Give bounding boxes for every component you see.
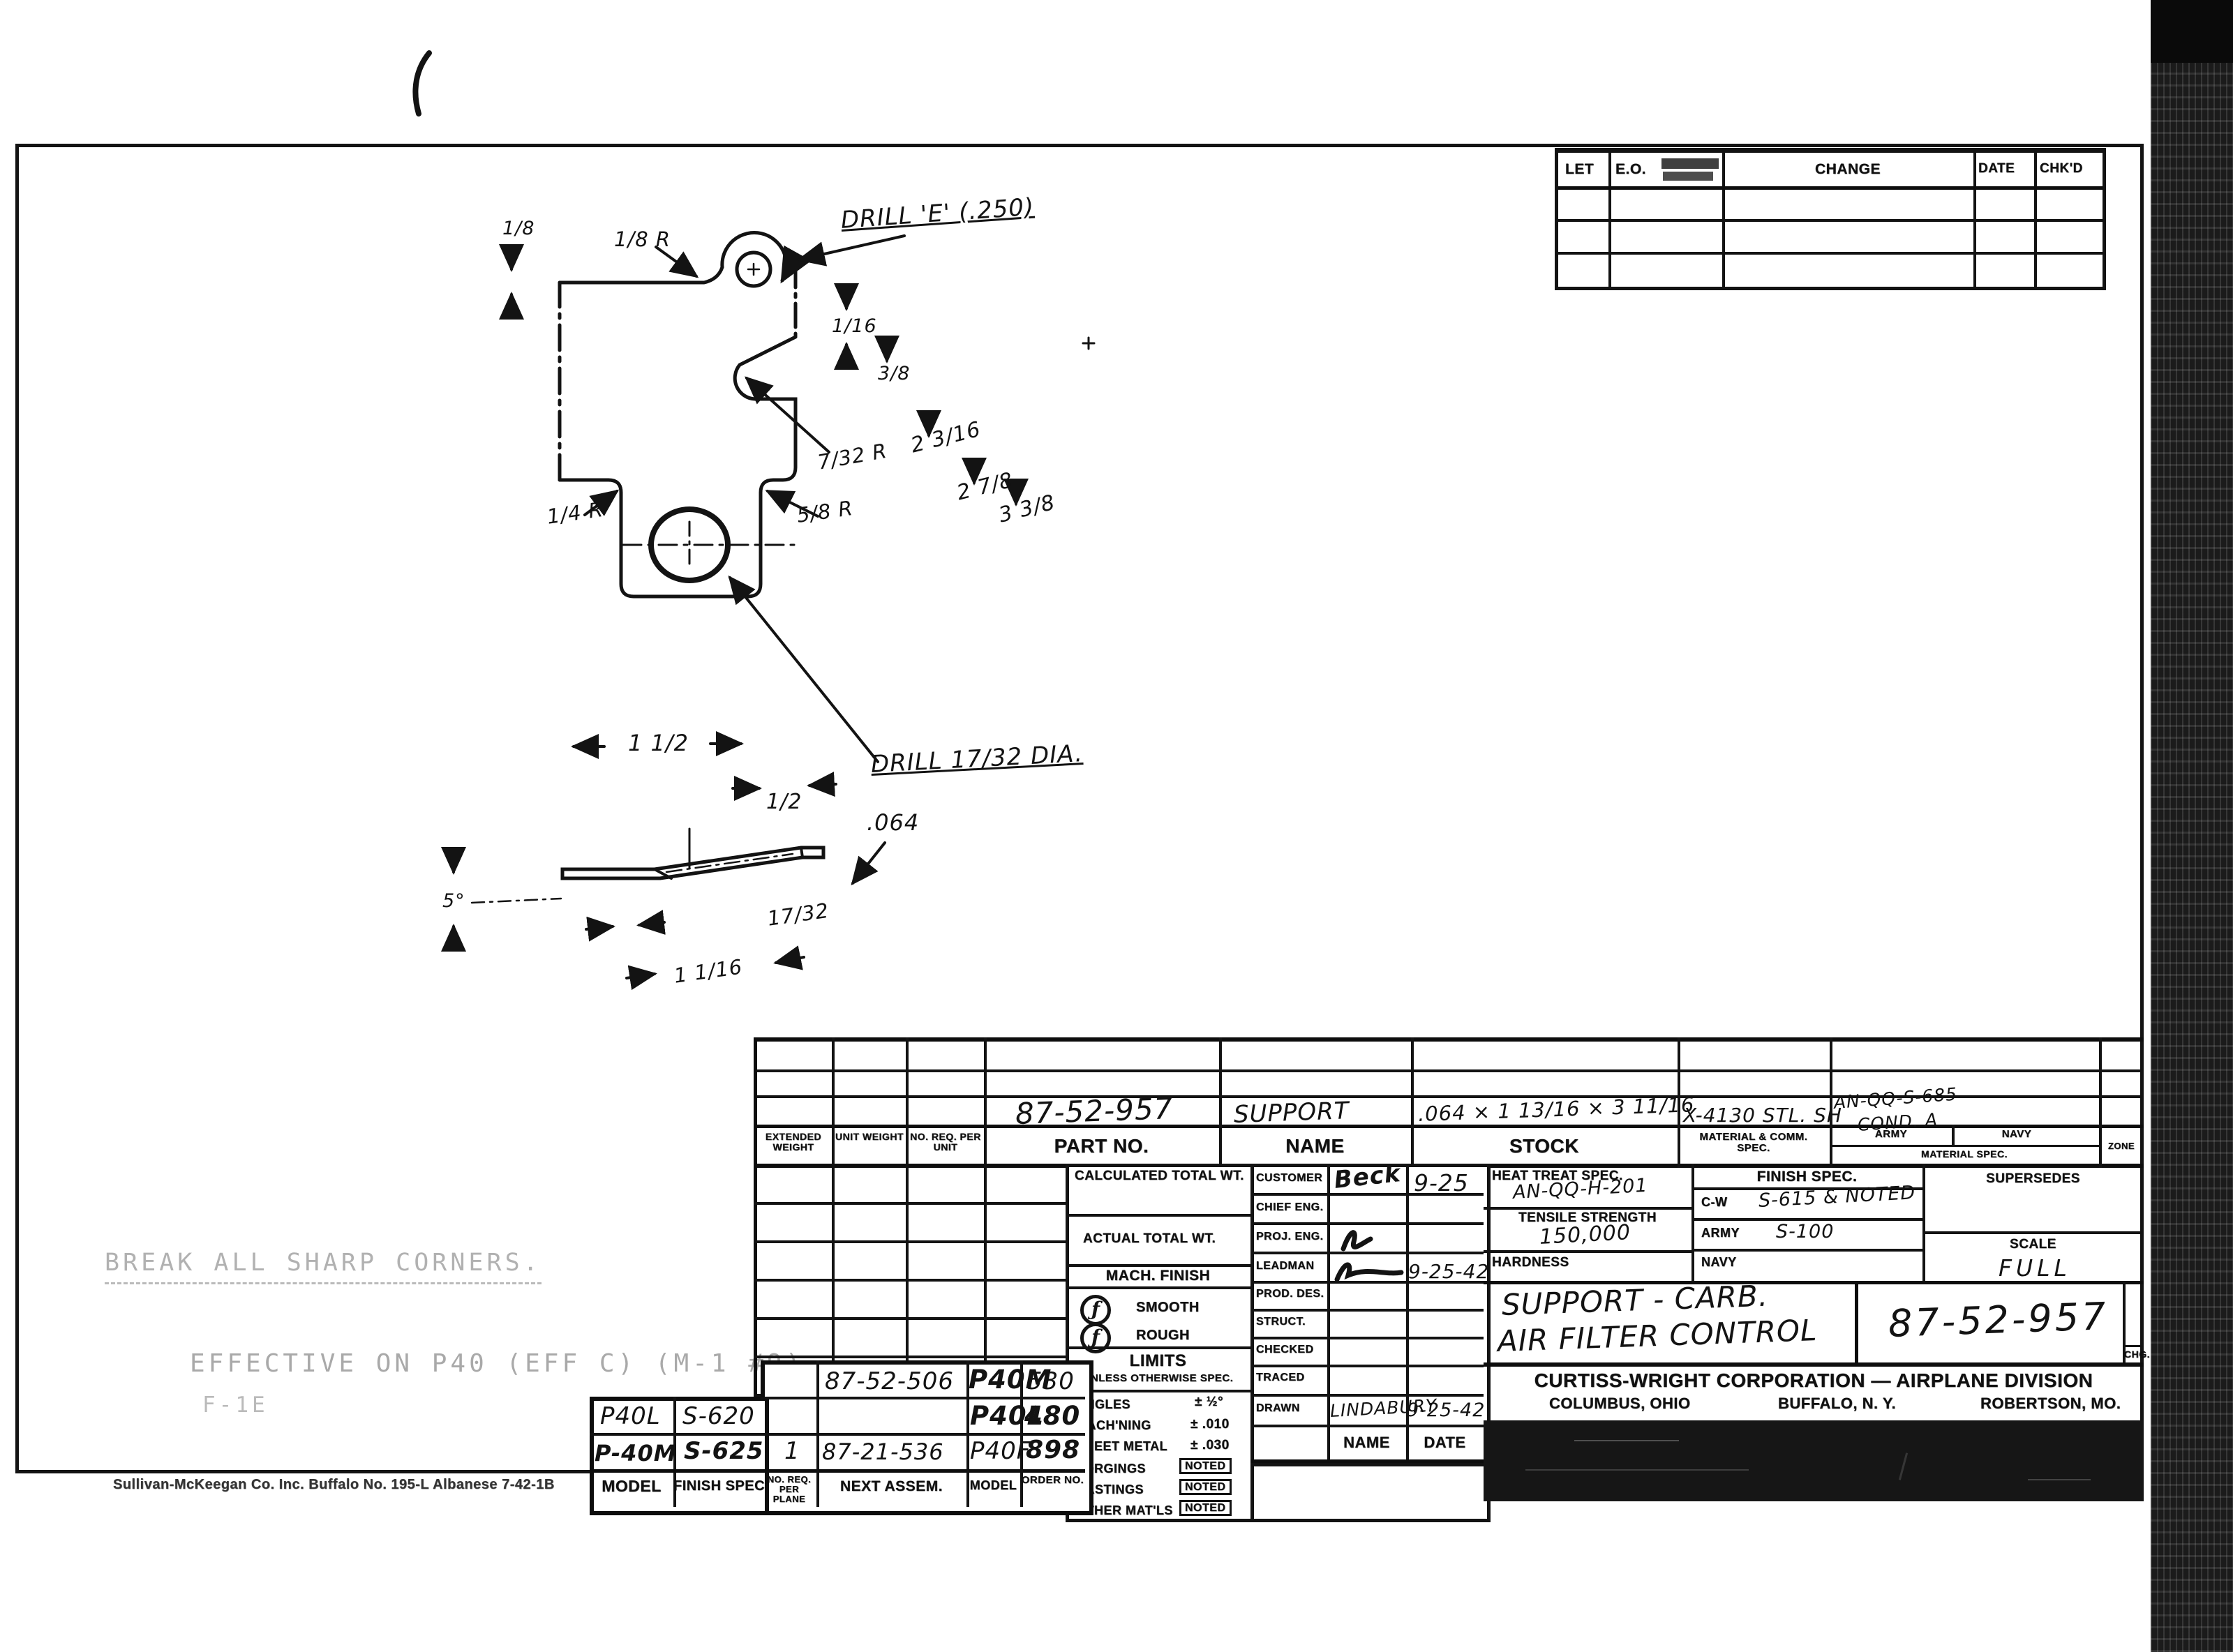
dim-5-deg: 5° (442, 890, 465, 912)
company-loc-robertson: ROBERTSON, MO. (1980, 1395, 2121, 1412)
company-name: CURTISS-WRIGHT CORPORATION — AIRPLANE DI… (1484, 1370, 2144, 1391)
scale-value: FULL (1999, 1254, 2071, 1282)
row3-model: P-40M (595, 1440, 677, 1466)
dim-3-8: 3/8 (878, 363, 910, 384)
limit-machining-value: ± .010 (1190, 1418, 1230, 1432)
row2-finish: S-620 (682, 1402, 755, 1430)
row3-order: 898 (1026, 1436, 1080, 1464)
limit-other-matls-value: NOTED (1179, 1500, 1232, 1516)
limit-angles-value: ± ½° (1195, 1395, 1223, 1410)
hdr-no-req-plane: NO. REQ. PER PLANE (762, 1475, 816, 1504)
hdr-extended-weight: EXTENDED WEIGHT (755, 1132, 832, 1152)
dim-thickness: .064 (867, 809, 919, 836)
hdr-unit-weight: UNIT WEIGHT (833, 1132, 906, 1142)
sig-traced-label: TRACED (1256, 1372, 1305, 1383)
cw-label: C-W (1701, 1196, 1727, 1209)
row3-model-r: P40F (970, 1437, 1031, 1465)
pen-stroke (415, 53, 429, 114)
hdr-next-assem: NEXT ASSEM. (816, 1479, 966, 1495)
leader-r-1-8 (656, 247, 696, 276)
hdr-stock: STOCK (1411, 1136, 1678, 1157)
print-shop-info: Sullivan-McKeegan Co. Inc. Buffalo No. 1… (113, 1478, 555, 1493)
leader-drill-17-32 (730, 578, 878, 762)
hdr-material-spec: MATERIAL SPEC. (1830, 1149, 2099, 1159)
company-loc-columbus: COLUMBUS, OHIO (1549, 1395, 1691, 1412)
limit-castings-value: NOTED (1179, 1479, 1232, 1495)
army-value: S-100 (1776, 1221, 1834, 1242)
sig-blank-box (1250, 1463, 1491, 1522)
black-scan-block (1484, 1420, 2144, 1501)
sig-drawn-date: 9-25-42 (1407, 1399, 1485, 1421)
mach-finish-title: MACH. FINISH (1066, 1268, 1250, 1284)
entry-material: X-4130 STL. SH (1683, 1104, 1842, 1127)
hardness-label: HARDNESS (1492, 1256, 1569, 1270)
company-loc-buffalo: BUFFALO, N. Y. (1778, 1395, 1896, 1412)
finish-symbol-rough-icon: ƒ (1080, 1323, 1111, 1353)
sig-checked-label: CHECKED (1256, 1344, 1314, 1356)
row1-order: 530 (1027, 1367, 1075, 1395)
part-top-edge (560, 267, 722, 283)
row2-order: 480 (1024, 1401, 1080, 1431)
hdr-model-left: MODEL (590, 1478, 673, 1495)
calc-total-wt: CALCULATED TOTAL WT. (1075, 1169, 1244, 1184)
drawing-number: 87-52-957 (1888, 1294, 2109, 1346)
finish-smooth-label: SMOOTH (1136, 1300, 1200, 1316)
hdr-part-no: PART NO. (984, 1136, 1219, 1157)
leader-r-7-32 (747, 378, 829, 452)
sig-date-header: DATE (1406, 1434, 1484, 1451)
hdr-zone: ZONE (2099, 1141, 2144, 1151)
hdr-finish-spec: FINISH SPEC (673, 1479, 761, 1494)
dim-1-1-2: 1 1/2 (628, 730, 689, 756)
hdr-navy: NAVY (1961, 1129, 2073, 1140)
side-view-outline (562, 848, 823, 878)
stamp-effective-note: F-1E (202, 1392, 269, 1418)
limit-forgings-value: NOTED (1179, 1458, 1232, 1474)
hdr-material-comm: MATERIAL & COMM. SPEC. (1682, 1132, 1825, 1154)
sig-leadman-label: LEADMAN (1256, 1260, 1315, 1272)
sig-customer-label: CUSTOMER (1256, 1172, 1322, 1184)
sig-prod-des-label: PROD. DES. (1256, 1288, 1324, 1300)
leader-thickness (853, 843, 885, 883)
hdr-model-right: MODEL (966, 1479, 1020, 1492)
row1-next-assem: 87-52-506 (825, 1367, 954, 1395)
scanned-drawing-sheet: { "revision_table": { "let": "LET", "eo"… (0, 0, 2233, 1652)
stamp-break-corners: BREAK ALL SHARP CORNERS. (105, 1249, 542, 1284)
row3-next-assem: 87-21-536 (822, 1439, 944, 1465)
army-label: ARMY (1701, 1226, 1740, 1240)
hdr-no-req-unit: NO. REQ. PER UNIT (907, 1132, 984, 1152)
hdr-name: NAME (1219, 1136, 1411, 1157)
row2-model: P40L (600, 1402, 661, 1430)
limit-sheet-metal-value: ± .030 (1190, 1439, 1230, 1453)
entry-part-no: 87-52-957 (1015, 1091, 1174, 1131)
dim-1-2: 1/2 (766, 790, 802, 814)
navy-label: NAVY (1701, 1256, 1737, 1269)
entry-name: SUPPORT (1233, 1097, 1350, 1129)
sig-struct-label: STRUCT. (1256, 1316, 1306, 1328)
leader-drill-e (800, 236, 904, 260)
actual-total-wt: ACTUAL TOTAL WT. (1083, 1232, 1216, 1247)
sig-name-header: NAME (1327, 1434, 1406, 1451)
sig-proj-eng-label: PROJ. ENG. (1256, 1231, 1324, 1242)
row3-finish: S-625 (684, 1437, 764, 1465)
sig-chief-eng-label: CHIEF ENG. (1256, 1201, 1324, 1213)
scale-label: SCALE (1922, 1238, 2144, 1252)
finish-symbol-smooth-icon: ƒ (1080, 1295, 1111, 1326)
part-outline (560, 337, 796, 596)
sig-customer-date: 9-25 (1414, 1169, 1469, 1196)
rad-1-8: 1/8 R (614, 227, 671, 251)
row3-no-req: 1 (784, 1437, 800, 1465)
chg-label: CHG. (2124, 1349, 2150, 1360)
hdr-order-no: ORDER NO. (1020, 1475, 1085, 1486)
sig-leadman-date: 9-25-42 (1408, 1260, 1489, 1283)
dim-1-16: 1/16 (832, 315, 877, 337)
dim-1-8: 1/8 (502, 218, 535, 239)
sig-drawn-label: DRAWN (1256, 1402, 1300, 1414)
tensile-value: 150,000 (1539, 1220, 1631, 1249)
finish-rough-label: ROUGH (1136, 1328, 1190, 1344)
supersedes-label: SUPERSEDES (1922, 1172, 2144, 1187)
stamp-effective: EFFECTIVE ON P40 (EFF C) (M-1 #9) (190, 1349, 804, 1378)
